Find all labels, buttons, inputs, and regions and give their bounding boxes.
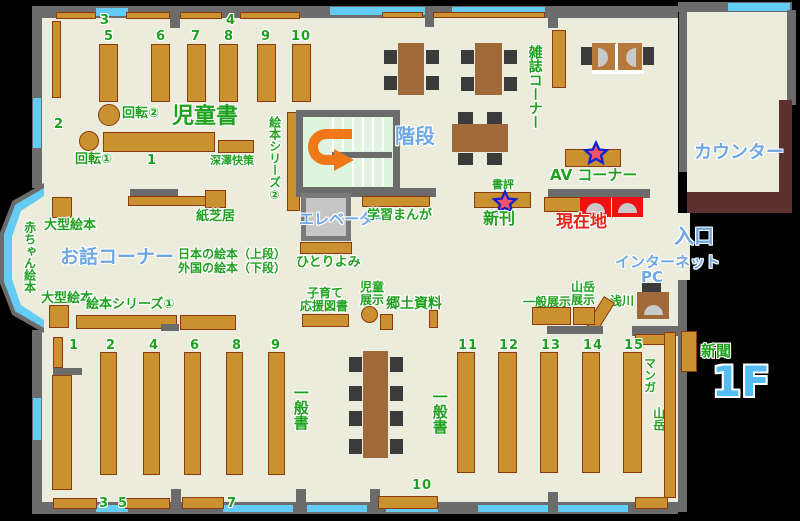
kamishibai-label: 紙芝居 [196, 210, 235, 224]
bookshelf [53, 498, 97, 509]
shelf-number: 11 [458, 339, 478, 353]
wall-pillar [548, 492, 558, 512]
bookshelf [53, 337, 63, 368]
chair [487, 112, 502, 124]
rotation1-label: 回転① [75, 153, 112, 167]
chair [384, 76, 397, 90]
chair [349, 439, 362, 454]
wall-pillar [171, 489, 181, 509]
children-display-label: 児童 [360, 281, 384, 294]
area-av-corner: AV コーナー [550, 168, 637, 184]
book-review-label: 書評 [492, 179, 514, 191]
chair [461, 77, 474, 91]
manga-label: マンガ [643, 357, 656, 393]
bookshelf [292, 44, 311, 102]
window [728, 3, 790, 11]
chair [349, 386, 362, 401]
reading-table [398, 43, 424, 95]
rotating-rack [98, 104, 120, 126]
bench [130, 189, 178, 196]
sofa-base [592, 70, 644, 74]
reading-table [452, 124, 508, 152]
shelf-number: 1 [69, 339, 79, 353]
chair [390, 386, 403, 401]
shelf-number: 4 [226, 14, 236, 28]
shelf-number: 6 [190, 339, 200, 353]
newspaper-shelf [681, 331, 697, 372]
bookshelf [184, 352, 201, 475]
sofa-armrest [581, 47, 592, 65]
study-table [363, 351, 388, 458]
shelf-number: 6 [156, 30, 166, 44]
new-arrivals-label: 新刊 [483, 211, 515, 228]
bookshelf [240, 12, 300, 19]
bookshelf [49, 305, 69, 328]
area-children-books: 児童書 [172, 105, 238, 128]
wall-pillar [296, 489, 306, 509]
chair [458, 153, 473, 165]
shelf-number: 3 [100, 14, 110, 28]
bookshelf [52, 375, 72, 490]
counter-room-right-wall [787, 10, 796, 105]
chair [426, 76, 439, 90]
bookshelf [143, 352, 160, 475]
counter-room-floor [687, 12, 792, 212]
baby-picture-books-label: 赤ちゃん絵本 [23, 221, 36, 293]
shelf-number: 1 [147, 154, 157, 168]
bookshelf [382, 12, 423, 18]
shelf-number: 4 [149, 339, 159, 353]
shelf-number: 9 [261, 30, 271, 44]
floor-label: 1F [712, 360, 770, 404]
parenting-books-label: 子育て [307, 287, 343, 300]
study-manga-label: 学習まんが [367, 209, 432, 223]
bench [547, 326, 603, 334]
bookshelf [56, 12, 96, 19]
bookshelf [126, 12, 170, 19]
rotation2-label: 回転② [122, 107, 159, 121]
shelf-number: 8 [224, 30, 234, 44]
chair [390, 411, 403, 426]
internet-pc-label: インターネット [615, 255, 720, 271]
right-wall [678, 280, 687, 512]
bookshelf [573, 307, 595, 325]
chair [426, 50, 439, 64]
window [33, 398, 41, 440]
shelf-number: 8 [232, 339, 242, 353]
shelf-number: 7 [191, 30, 201, 44]
shelf-number: 9 [271, 339, 281, 353]
japanese-picture-books-label: 日本の絵本（上段） [178, 248, 286, 261]
bookshelf [664, 332, 676, 498]
bookshelf [226, 352, 243, 475]
chair [461, 50, 474, 64]
chair [504, 50, 517, 64]
parenting-books-label2: 応援図書 [300, 300, 348, 313]
solo-reading-label: ひとりよみ [296, 256, 361, 270]
chair [349, 411, 362, 426]
bookshelf [187, 44, 206, 102]
shelf-number: 5 [104, 30, 114, 44]
shelf-number: 13 [541, 339, 561, 353]
shelf-number: 5 [118, 497, 128, 511]
fukazawa-label: 深澤快策 [210, 155, 254, 167]
wall-pillar [170, 6, 180, 28]
bookshelf [218, 140, 254, 153]
bookshelf [180, 315, 236, 330]
chair [504, 77, 517, 91]
bookshelf [219, 44, 238, 102]
area-counter: カウンター [694, 144, 784, 163]
shelf-number: 2 [54, 118, 64, 132]
shelf-number: 2 [106, 339, 116, 353]
series1-label: 絵本シリーズ① [86, 298, 174, 312]
counter-desk [687, 192, 792, 213]
sofa-armrest [643, 47, 654, 65]
magazine-shelf [552, 30, 566, 88]
u-turn-arrow-icon [302, 122, 358, 174]
library-floor-map: 3 4 2 5 6 7 8 9 10 回転② 児童書 回転① 1 深澤快策 絵本… [0, 0, 800, 521]
bookshelf [457, 352, 475, 473]
bookshelf [532, 307, 571, 325]
chair [384, 50, 397, 64]
bookshelf [180, 12, 222, 19]
shelf-number: 10 [412, 479, 432, 493]
large-picture-books-top: 大型絵本 [44, 219, 96, 233]
area-magazine-corner: 雑誌コーナー [527, 45, 542, 129]
rotating-rack [79, 131, 99, 151]
area-stairs: 階段 [395, 126, 435, 147]
bookshelf [582, 352, 600, 473]
foreign-picture-books-label: 外国の絵本（下段） [178, 262, 286, 275]
shelf-number: 3 [99, 497, 109, 511]
bookshelf [205, 190, 226, 208]
chair [390, 357, 403, 372]
bench [161, 324, 179, 331]
area-entrance: 入口 [674, 226, 714, 247]
series2-label: 絵本シリーズ② [268, 116, 281, 202]
bench [53, 368, 82, 375]
bookshelf [52, 197, 72, 218]
chair [390, 439, 403, 454]
bookshelf [103, 132, 215, 152]
bookshelf [100, 352, 117, 475]
mountain-label: 山岳 [652, 407, 665, 431]
shelf-number: 10 [291, 30, 311, 44]
bookshelf [623, 352, 642, 473]
bookshelf [544, 197, 581, 212]
bookshelf [182, 497, 224, 509]
bookshelf [378, 496, 438, 509]
bookshelf [362, 196, 430, 207]
display-table [361, 306, 378, 323]
reading-table [475, 43, 502, 95]
bookshelf [300, 242, 352, 254]
mountain-display-label2: 展示 [571, 294, 595, 307]
counter-divider-wall [679, 12, 687, 172]
window [33, 98, 41, 148]
left-wall-upper [32, 6, 42, 188]
bookshelf [380, 314, 393, 330]
bookshelf [257, 44, 276, 102]
stairs-steps [352, 158, 392, 186]
bookshelf [128, 196, 206, 206]
chair [349, 357, 362, 372]
bookshelf [302, 314, 349, 327]
you-are-here-label: 現在地 [556, 214, 607, 232]
bookshelf [429, 310, 438, 328]
chair [487, 153, 502, 165]
bookshelf [151, 44, 170, 102]
window [307, 505, 367, 512]
bookshelf [540, 352, 558, 473]
bookshelf [635, 497, 668, 509]
shelf-number: 12 [499, 339, 519, 353]
bookshelf [99, 44, 118, 102]
wall-pillar [548, 6, 558, 28]
bookshelf [498, 352, 517, 473]
shelf-number: 14 [583, 339, 603, 353]
bookshelf [125, 498, 170, 509]
shelf-number: 15 [624, 339, 644, 353]
general-books-left-label: 一般書 [292, 385, 308, 430]
shelf-number: 7 [227, 497, 237, 511]
star-icon [583, 141, 609, 167]
area-story-corner: お話コーナー [60, 248, 174, 268]
mountain-display-label: 山岳 [571, 281, 595, 294]
bookshelf [433, 12, 545, 18]
general-books-right-label: 一般書 [431, 389, 447, 434]
bookshelf [268, 352, 285, 475]
chair [458, 112, 473, 124]
bookshelf [52, 21, 61, 98]
children-display-label2: 展示 [360, 294, 384, 307]
